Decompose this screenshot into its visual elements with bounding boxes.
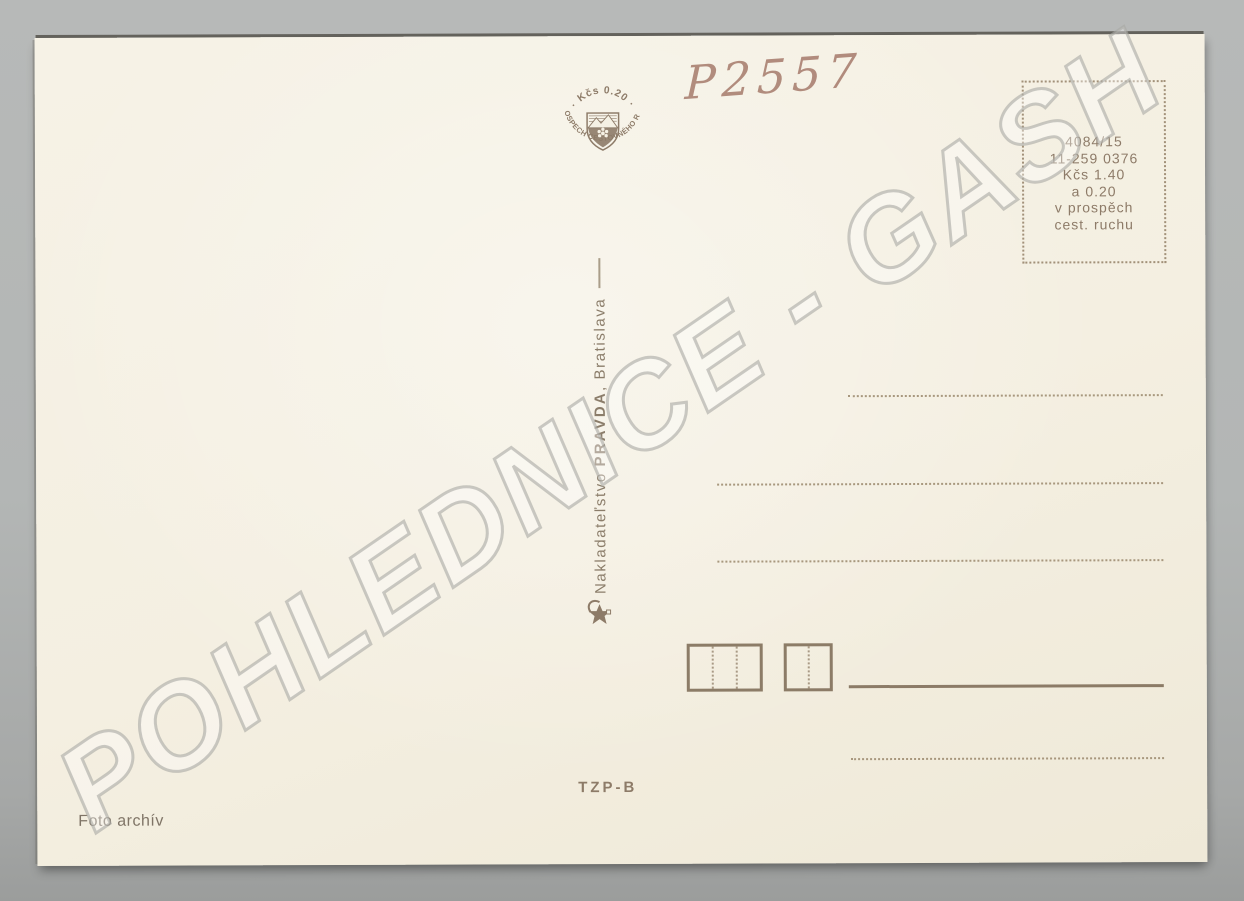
publisher-suffix: , Bratislava (591, 298, 608, 391)
stamp-box-line: 4084/15 (1024, 133, 1164, 150)
centre-divider-line (598, 258, 600, 288)
postal-code-box-2 (784, 643, 833, 691)
publisher-star-icon (585, 596, 617, 630)
stamp-box-line: a 0.20 (1024, 183, 1164, 200)
stamp-box-line: v prospěch (1024, 199, 1164, 216)
stamp-box-line: Kčs 1.40 (1024, 166, 1164, 183)
destination-line (849, 684, 1164, 688)
svg-text:· Kčs 0.20 ·: · Kčs 0.20 · (569, 85, 637, 110)
emblem-top-arc-text: · Kčs 0.20 · (569, 85, 637, 110)
handwritten-code: P2557 (684, 43, 863, 110)
mountain-shield-icon (587, 113, 619, 150)
publisher-imprint: Nakladateľstvo PRAVDA, Bratislava (591, 298, 609, 594)
postal-code-box-1 (687, 644, 763, 692)
photo-credit: Foto archív (78, 813, 164, 831)
publisher-name: PRAVDA (592, 391, 609, 466)
series-code: TZP-B (578, 779, 637, 796)
postal-code-cell (712, 647, 736, 689)
postal-code-cell (736, 647, 760, 689)
publisher-prefix: Nakladateľstvo (592, 466, 609, 594)
tourism-fee-emblem-icon: · Kčs 0.20 · V PROSPECH CESTOVNÉHO RUCHU (555, 74, 651, 176)
postcard-photo: · Kčs 0.20 · V PROSPECH CESTOVNÉHO RUCHU (0, 0, 1244, 901)
postal-code-cell (807, 646, 830, 688)
address-line-3 (717, 559, 1163, 563)
address-line-4 (851, 757, 1164, 760)
stamp-box-line: cest. ruchu (1024, 216, 1164, 233)
address-line-1 (848, 394, 1163, 397)
address-line-2 (717, 482, 1163, 486)
stamp-box: 4084/15 11-259 0376 Kčs 1.40 a 0.20 v pr… (1022, 80, 1167, 264)
postal-code-cell (690, 647, 712, 689)
postal-code-cell (787, 646, 808, 688)
stamp-box-line: 11-259 0376 (1024, 150, 1164, 167)
postcard-back: · Kčs 0.20 · V PROSPECH CESTOVNÉHO RUCHU (35, 34, 1208, 866)
